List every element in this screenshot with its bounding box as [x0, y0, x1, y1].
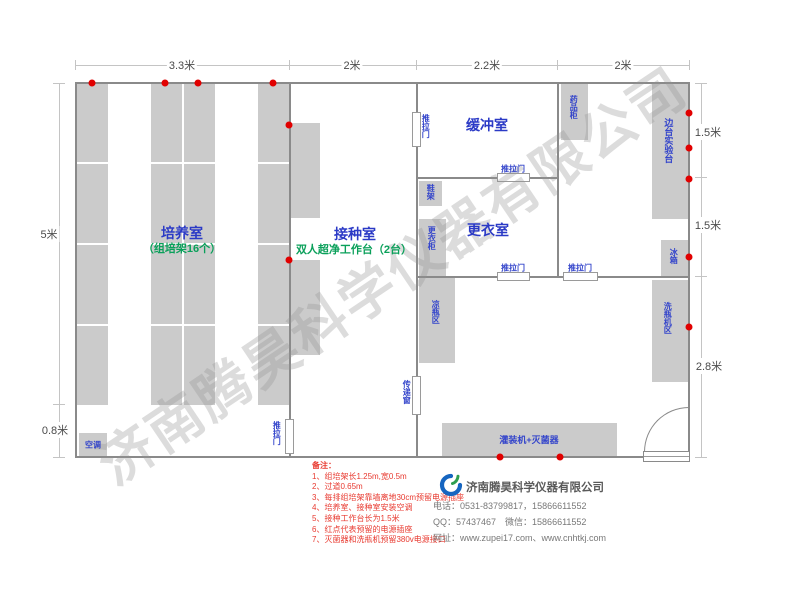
dim-line-left — [59, 83, 60, 458]
clean-bench-1 — [291, 123, 320, 218]
sliding-door-label-right: 推拉门 — [568, 263, 592, 272]
power-outlet-dot — [497, 454, 504, 461]
clean-bench-2 — [291, 260, 320, 355]
power-outlet-dot — [270, 80, 277, 87]
side-bench-label: 边台实验台 — [663, 118, 673, 163]
dim-tick — [75, 60, 76, 70]
company-qq-wechat: QQ：57437467 微信：15866611552 — [433, 515, 586, 528]
wall-left — [75, 82, 77, 458]
dim-tick — [695, 83, 707, 84]
dim-tick — [689, 60, 690, 70]
dim-top-4: 2米 — [612, 57, 633, 73]
sliding-door-label-changing: 推拉门 — [501, 263, 525, 272]
dim-right-3: 2.8米 — [694, 358, 724, 374]
dim-tick — [289, 60, 290, 70]
notes-title: 备注： — [312, 461, 464, 472]
filling-machine-label: 灌装机+灭菌器 — [499, 435, 558, 445]
room-title-buffer: 缓冲室 — [466, 115, 508, 135]
company-name: 济南腾昊科学仪器有限公司 — [466, 479, 604, 495]
shoe-rack-label: 鞋架 — [426, 184, 435, 200]
dim-right-2: 1.5米 — [693, 217, 723, 233]
dim-tick — [557, 60, 558, 70]
dim-tick — [416, 60, 417, 70]
sliding-door-changing-bottom — [497, 272, 530, 281]
wall-buffer-changing — [417, 177, 558, 179]
power-outlet-dot — [89, 80, 96, 87]
wall-right — [688, 82, 690, 458]
power-outlet-dot — [557, 454, 564, 461]
culture-rack-3 — [258, 83, 290, 405]
air-conditioner-label: 空调 — [85, 440, 101, 449]
sliding-door-buffer-top — [412, 112, 421, 147]
power-outlet-dot — [686, 254, 693, 261]
dim-left-1: 5米 — [38, 226, 59, 242]
sliding-door-label-buffer: 推拉门 — [501, 164, 525, 173]
fridge-label: 冰箱 — [669, 248, 678, 264]
entry-door-swing-arc — [644, 407, 689, 452]
sliding-door-label-culture: 推拉门 — [272, 421, 281, 445]
wall-culture-inoculation — [289, 83, 291, 458]
room-title-changing: 更衣室 — [467, 220, 509, 240]
wall-buffer-right — [557, 83, 559, 278]
bottle-washer-label: 洗瓶机区 — [663, 302, 672, 334]
wardrobe-label: 更衣柜 — [427, 226, 436, 250]
transfer-window-label: 传递窗 — [402, 380, 411, 404]
sliding-door-right-bottom — [563, 272, 598, 281]
wall-bottom — [75, 456, 690, 458]
company-phone: 电话：0531-83799817，15866611552 — [433, 499, 586, 512]
sliding-door-buffer-changing — [497, 173, 530, 182]
power-outlet-dot — [686, 324, 693, 331]
dim-top-1: 3.3米 — [167, 57, 197, 73]
dim-tick — [695, 177, 707, 178]
power-outlet-dot — [286, 257, 293, 264]
sliding-door-label-top: 推拉门 — [421, 114, 430, 138]
floor-plan: 济南腾昊科学仪器有限公司 培养室 （组培架16个） 接种室 双人超净工作台（2台… — [0, 0, 800, 600]
power-outlet-dot — [162, 80, 169, 87]
power-outlet-dot — [686, 110, 693, 117]
power-outlet-dot — [286, 122, 293, 129]
dim-top-2: 2米 — [341, 57, 362, 73]
dim-left-2: 0.8米 — [40, 422, 70, 438]
dim-tick — [53, 457, 65, 458]
company-website: 网址：www.zupei17.com、www.cnhtkj.com — [433, 531, 606, 544]
dim-tick — [53, 83, 65, 84]
dim-top-3: 2.2米 — [472, 57, 502, 73]
dim-tick — [695, 276, 707, 277]
power-outlet-dot — [195, 80, 202, 87]
dim-tick — [695, 457, 707, 458]
room-subtitle-culture: （组培架16个） — [143, 240, 221, 256]
power-outlet-dot — [686, 145, 693, 152]
transfer-window-frame — [412, 376, 421, 415]
dim-tick — [53, 404, 65, 405]
entry-door-leaf — [643, 451, 690, 462]
power-outlet-dot — [686, 176, 693, 183]
cool-bottle-area-label: 凉瓶区 — [431, 300, 440, 324]
sliding-door-culture — [285, 419, 294, 454]
medicine-cabinet-label: 药品柜 — [569, 95, 578, 119]
dim-right-1: 1.5米 — [693, 124, 723, 140]
culture-rack-1 — [77, 83, 108, 405]
wall-changing-bottom — [417, 276, 689, 278]
room-subtitle-inoculation: 双人超净工作台（2台） — [296, 241, 412, 257]
company-logo-icon — [439, 473, 463, 497]
